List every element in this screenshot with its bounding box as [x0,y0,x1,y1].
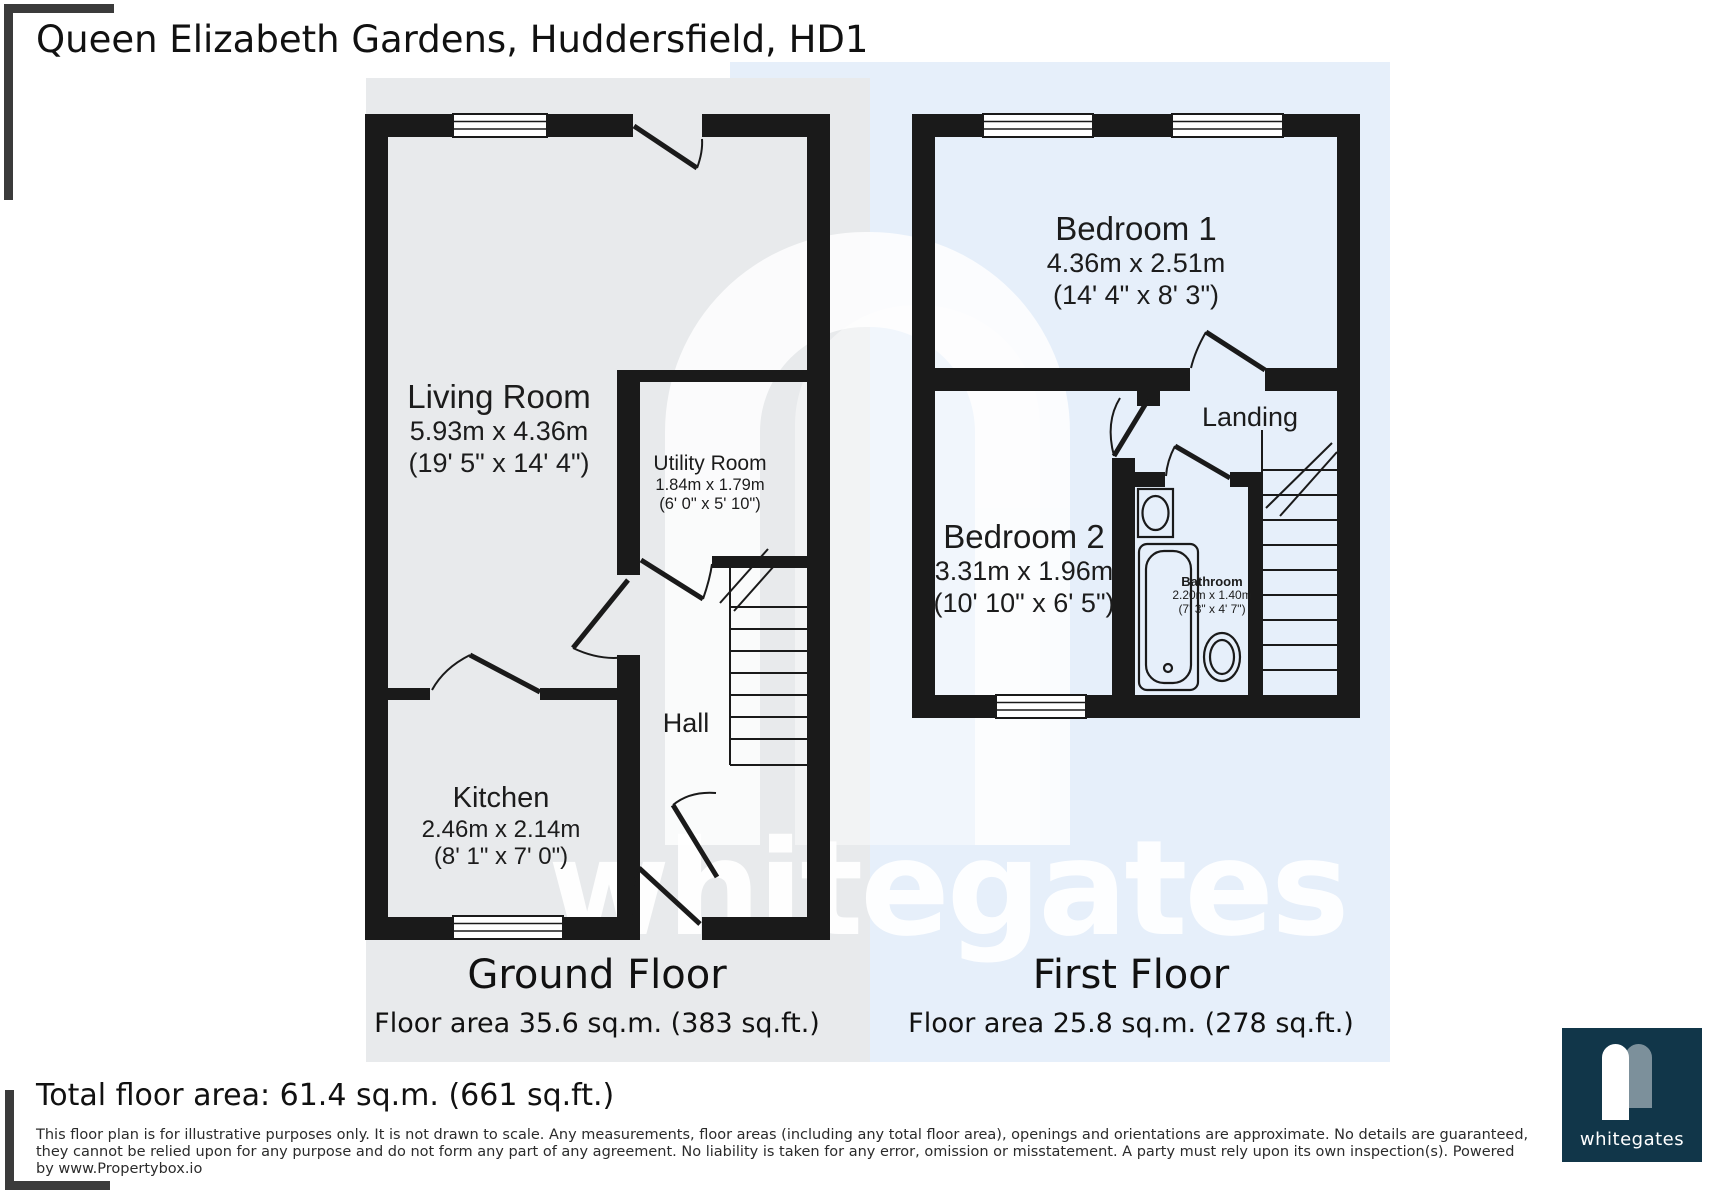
disclaimer-line: they cannot be relied upon for any purpo… [36,1144,1528,1161]
floorplan-page: whitegates [0,0,1728,1192]
landing-label: Landing [1202,402,1298,433]
first-floor-area: Floor area 25.8 sq.m. (278 sq.ft.) [908,1008,1354,1039]
ground-floor-caption: Ground Floor Floor area 35.6 sq.m. (383 … [374,952,820,1039]
whitegates-logo: whitegates [1562,1028,1702,1162]
disclaimer-line: by www.Propertybox.io [36,1161,1528,1178]
first-floor-title: First Floor [908,952,1354,998]
ground-stairs [720,549,807,765]
hall-label: Hall [663,708,710,739]
ground-floor-area: Floor area 35.6 sq.m. (383 sq.ft.) [374,1008,820,1039]
first-stairs [1262,430,1337,695]
corner-bracket-bottom-left [5,1181,110,1190]
logo-arch2-icon [1625,1044,1652,1108]
bedroom2-label: Bedroom 2 3.31m x 1.96m (10' 10" x 6' 5"… [933,518,1114,619]
disclaimer-line: This floor plan is for illustrative purp… [36,1127,1528,1144]
ground-floor-title: Ground Floor [374,952,820,998]
living-room-label: Living Room 5.93m x 4.36m (19' 5" x 14' … [407,378,590,479]
logo-text: whitegates [1562,1129,1702,1150]
corner-bracket-top-left-arm [4,4,13,200]
kitchen-label: Kitchen 2.46m x 2.14m (8' 1" x 7' 0") [422,782,581,871]
first-floor-caption: First Floor Floor area 25.8 sq.m. (278 s… [908,952,1354,1039]
page-title: Queen Elizabeth Gardens, Huddersfield, H… [36,18,868,61]
total-floor-area: Total floor area: 61.4 sq.m. (661 sq.ft.… [36,1078,614,1113]
corner-bracket-top-left [4,4,114,13]
bathroom-label: Bathroom 2.20m x 1.40m (7' 3" x 4' 7") [1172,574,1251,617]
bedroom1-label: Bedroom 1 4.36m x 2.51m (14' 4" x 8' 3") [1047,210,1226,311]
bathtub-icon [1139,544,1198,690]
utility-room-label: Utility Room 1.84m x 1.79m (6' 0" x 5' 1… [653,452,766,515]
disclaimer-text: This floor plan is for illustrative purp… [36,1127,1528,1178]
floorplan-drawing [0,0,1728,1192]
corner-bracket-bottom-left-arm [5,1090,14,1190]
